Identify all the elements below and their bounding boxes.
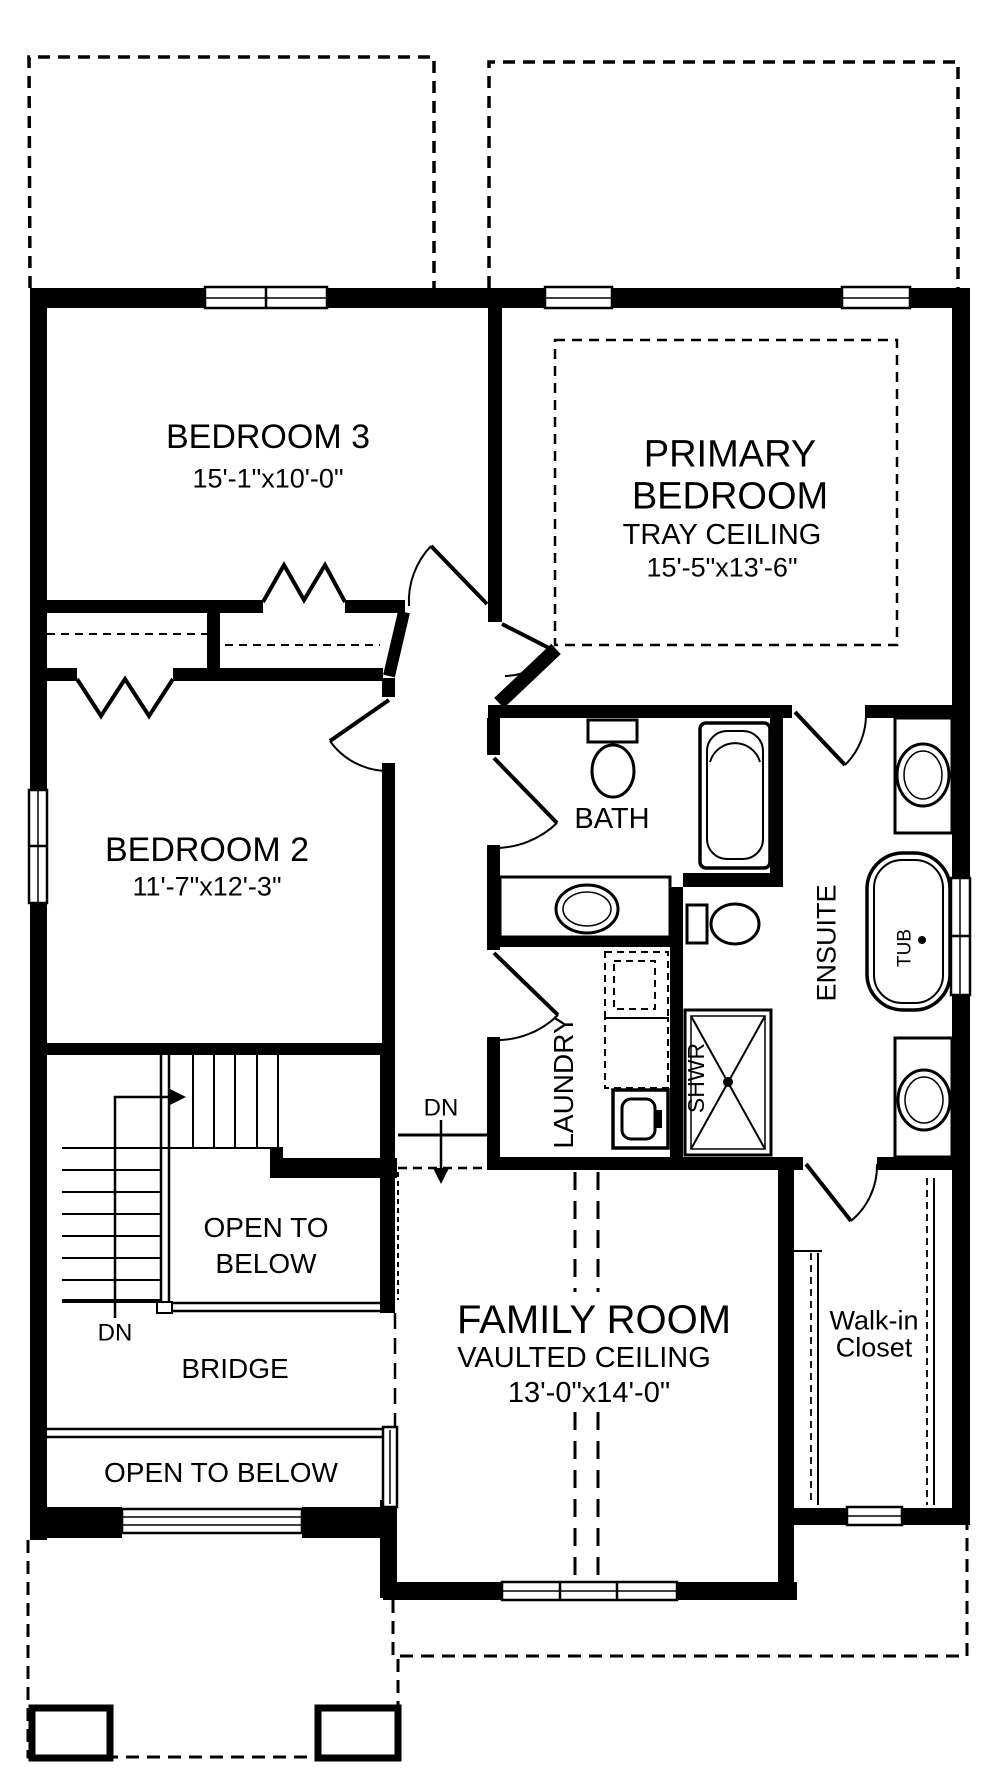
primary-bedroom-ceiling: TRAY CEILING	[623, 519, 822, 551]
ensuite-toilet-icon	[687, 904, 759, 944]
bedroom2-label: BEDROOM 2	[105, 831, 309, 869]
primary-bedroom-label-line2: BEDROOM	[632, 475, 828, 517]
laundry-label: LAUNDRY	[548, 1015, 579, 1149]
bath-toilet-icon	[588, 720, 637, 797]
bath-door	[494, 758, 557, 848]
walk-in-closet-label-line1: Walk-in	[829, 1305, 918, 1335]
bedroom2-window	[29, 790, 47, 903]
stair-treads-left-run	[62, 1170, 160, 1302]
ensuite-vanity-sink-bottom-icon	[895, 1038, 952, 1157]
vaulted-ceiling-lines	[575, 1172, 598, 1580]
front-left-roof-outline	[29, 57, 434, 288]
porch-post-left	[32, 1708, 110, 1758]
porch-post-right	[318, 1708, 398, 1758]
hall-chamfer	[389, 612, 404, 676]
shower-label: SHWR	[683, 1043, 709, 1113]
bedroom2-door	[330, 700, 389, 771]
stair-direction-arrow	[115, 1089, 186, 1318]
closet-window	[847, 1507, 902, 1525]
ensuite-label: ENSUITE	[811, 884, 841, 1001]
labels: BEDROOM 3 15'-1"x10'-0" PRIMARY BEDROOM …	[98, 418, 919, 1488]
down-label-family: DN	[424, 1094, 459, 1121]
walk-in-closet-label-line2: Closet	[836, 1332, 913, 1362]
bridge-label: BRIDGE	[181, 1353, 288, 1384]
primary-bedroom-dims: 15'-5"x13'-6"	[646, 552, 797, 582]
open-below-window	[122, 1509, 302, 1533]
walk-in-closet-door	[806, 1164, 877, 1221]
ensuite-window	[951, 878, 970, 995]
ensuite-door	[795, 712, 866, 765]
bedroom3-door	[409, 546, 487, 606]
bath-tub-icon	[700, 723, 770, 868]
bedroom3-window	[205, 287, 327, 308]
family-room-windows	[502, 1582, 677, 1600]
stairwell-side-window	[383, 1427, 397, 1507]
primary-window-right	[842, 287, 910, 308]
family-room-label: FAMILY ROOM	[457, 1298, 731, 1342]
bedroom2-dims: 11'-7"x12'-3"	[132, 871, 281, 901]
bath-label: BATH	[574, 803, 649, 835]
ensuite-vanity-sink-top-icon	[895, 718, 952, 833]
laundry-dashed-cabinets	[605, 952, 668, 1088]
open-below-lower-label: OPEN TO BELOW	[104, 1457, 338, 1488]
open-below-upper-line2: BELOW	[215, 1248, 317, 1279]
down-arrow-icon	[433, 1168, 449, 1184]
tub-label: TUB	[895, 929, 916, 967]
floor-plan-page: BEDROOM 3 15'-1"x10'-0" PRIMARY BEDROOM …	[0, 0, 1000, 1776]
down-label-stairs: DN	[98, 1319, 133, 1346]
porch-posts	[32, 1708, 398, 1758]
floor-plan: BEDROOM 3 15'-1"x10'-0" PRIMARY BEDROOM …	[0, 0, 1000, 1776]
bedroom2-closet-bifold	[77, 679, 173, 716]
primary-window-left	[545, 287, 612, 308]
open-below-upper-line1: OPEN TO	[203, 1212, 328, 1243]
family-room-ceiling: VAULTED CEILING	[457, 1342, 711, 1374]
front-right-roof-outline	[489, 62, 958, 288]
bedroom3-label: BEDROOM 3	[166, 418, 370, 456]
washer-icon	[613, 1090, 668, 1148]
family-room-dims: 13'-0"x14'-0"	[508, 1377, 670, 1409]
bedroom3-dims: 15'-1"x10'-0"	[192, 463, 343, 493]
family-room-steps	[398, 1120, 487, 1184]
bedroom3-closet-bifold	[263, 565, 345, 602]
primary-bedroom-label-line1: PRIMARY	[644, 433, 816, 475]
bath-vanity-sink-icon	[500, 877, 670, 937]
